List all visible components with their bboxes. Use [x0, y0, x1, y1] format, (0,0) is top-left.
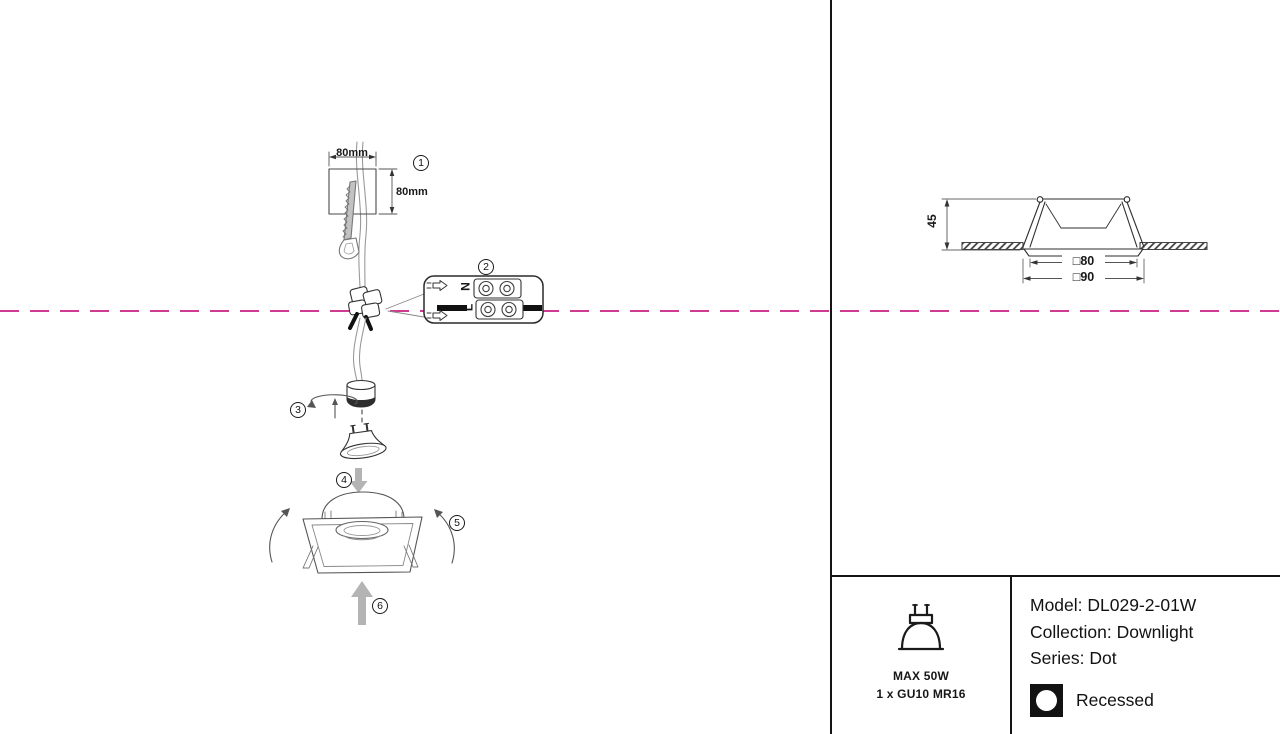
hole-height-label: 80mm	[396, 186, 428, 199]
wire-connector-drawing	[348, 286, 424, 381]
lamp-spec-cell: MAX 50W 1 x GU10 MR16	[832, 577, 1010, 734]
step-number-4: 4	[336, 472, 352, 488]
installation-diagram	[0, 0, 830, 734]
step2-terminal-block-drawing	[424, 276, 543, 323]
fixture-section-profile	[1023, 197, 1144, 256]
step4-6-fixture-drawing	[270, 468, 455, 625]
trim-size-label: □90	[1062, 271, 1105, 284]
step-number-5: 5	[449, 515, 465, 531]
recessed-mount-icon	[1030, 684, 1063, 717]
recessed-mount-icon-circle	[1036, 690, 1057, 711]
ceiling-hatch-right	[1140, 243, 1207, 250]
cutout-size-label: □80	[1062, 255, 1105, 268]
hole-width-label: 80mm	[328, 147, 376, 160]
live-terminal	[476, 300, 523, 319]
step1-hole-cut-drawing	[329, 142, 397, 287]
lamp-type-label: 1 x GU10 MR16	[876, 687, 965, 701]
step-number-2: 2	[478, 259, 494, 275]
saw-icon	[339, 181, 359, 259]
max-wattage-label: MAX 50W	[893, 669, 949, 683]
down-arrow-icon	[350, 468, 368, 493]
gu10-bulb-drawing	[337, 421, 387, 461]
recess-depth-label: 45	[926, 208, 940, 234]
instruction-sheet: 80mm 80mm N L 45 □80 □90 1 2 3 4 5 6 MAX…	[0, 0, 1280, 734]
neutral-terminal	[474, 279, 521, 298]
spec-panel: MAX 50W 1 x GU10 MR16 Model: DL029-2-01W…	[832, 575, 1280, 734]
step-number-6: 6	[372, 598, 388, 614]
step3-bulb-install-drawing	[307, 381, 387, 462]
series-label: Series: Dot	[1030, 645, 1280, 672]
product-spec-cell: Model: DL029-2-01W Collection: Downlight…	[1010, 577, 1280, 734]
model-label: Model: DL029-2-01W	[1030, 592, 1280, 619]
step-number-1: 1	[413, 155, 429, 171]
mounting-type-label: Recessed	[1076, 690, 1154, 711]
lamp-socket	[347, 381, 375, 408]
collection-label: Collection: Downlight	[1030, 619, 1280, 646]
height-dimension-line	[379, 169, 397, 214]
ceiling-hatch-left	[962, 243, 1023, 250]
square-trim	[303, 517, 422, 573]
mounting-row: Recessed	[1030, 684, 1280, 717]
section-drawing	[830, 0, 1280, 575]
step-number-3: 3	[290, 402, 306, 418]
up-arrow-icon	[351, 581, 373, 625]
terminal-neutral-label: N	[460, 280, 473, 294]
terminal-live-label: L	[463, 301, 476, 315]
rotate-curved-arrow-left-icon	[270, 508, 290, 562]
gu10-bulb-icon	[897, 603, 945, 653]
